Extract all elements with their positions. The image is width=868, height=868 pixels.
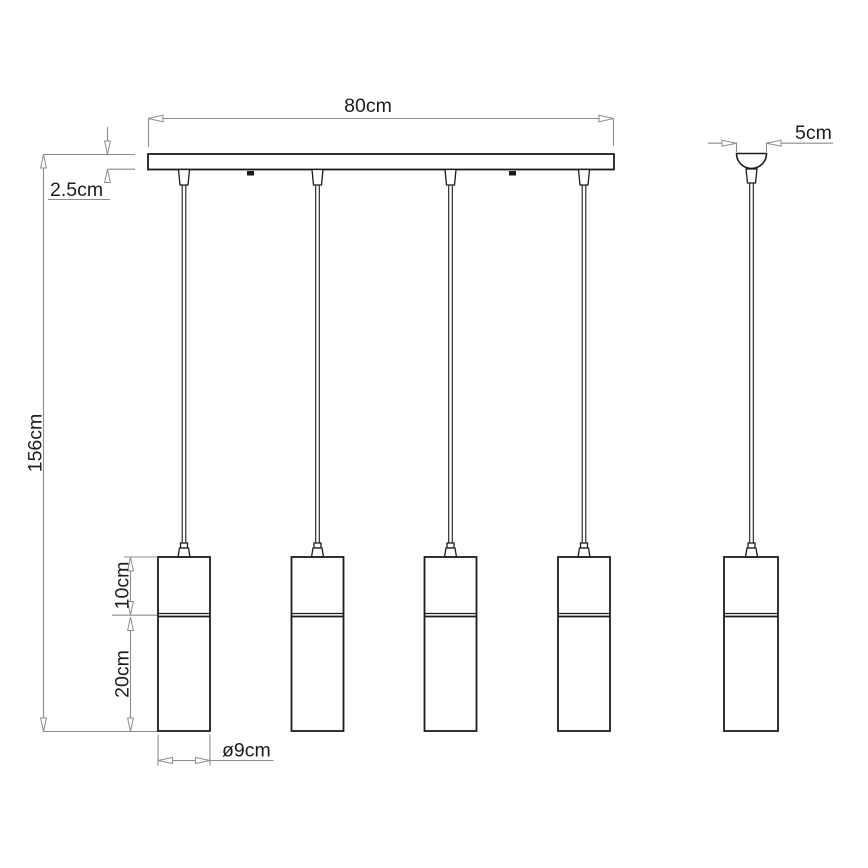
shade-diameter-label: ø9cm — [222, 740, 271, 762]
mounting-screw-dot — [509, 171, 516, 176]
cord-grip — [312, 170, 323, 186]
shade-connector — [746, 548, 758, 557]
shade-connector-stem — [314, 543, 321, 548]
front-view — [148, 154, 614, 731]
dim-bar-width: 80cm — [148, 95, 614, 147]
ceiling-bar — [148, 154, 614, 170]
suspension-cable — [750, 183, 754, 544]
pendant-3 — [425, 170, 477, 732]
cord-grip — [445, 170, 456, 186]
suspension-cable — [582, 185, 586, 544]
shade-cylinder — [724, 557, 778, 731]
canopy-dome — [737, 154, 767, 169]
suspension-cable — [316, 185, 320, 544]
shade-connector-stem — [447, 543, 454, 548]
bar-thickness-label: 2.5cm — [50, 179, 103, 201]
shade-lower-label: 20cm — [112, 650, 134, 698]
side-view — [724, 154, 778, 732]
shade-cylinder — [292, 557, 344, 731]
pendant-1 — [158, 170, 210, 732]
bar-width-label: 80cm — [344, 95, 392, 117]
canopy-width-label: 5cm — [795, 122, 832, 144]
shade-cylinder — [558, 557, 610, 731]
cord-grip — [179, 170, 190, 186]
shade-connector-stem — [181, 543, 188, 548]
dim-bar-thickness: 2.5cm — [43, 127, 135, 201]
mounting-screw-dot — [247, 171, 254, 176]
shade-connector — [312, 548, 324, 557]
suspension-cable — [182, 185, 186, 544]
dim-shade-upper: 10cm — [112, 557, 158, 615]
overall-drop-label: 156cm — [25, 414, 47, 473]
dim-shade-diameter: ø9cm — [158, 735, 274, 766]
dim-shade-lower: 20cm — [112, 617, 134, 732]
suspension-cable — [449, 185, 453, 544]
shade-cylinder — [425, 557, 477, 731]
dim-canopy-width: 5cm — [708, 122, 833, 152]
pendant-2 — [292, 170, 344, 732]
cord-grip — [579, 170, 590, 186]
pendant-4 — [558, 170, 610, 732]
dim-overall-drop: 156cm — [25, 155, 158, 732]
shade-connector-stem — [581, 543, 588, 548]
canopy-nipple — [746, 169, 757, 183]
shade-connector-stem — [748, 543, 755, 548]
pendant-light-dimension-drawing: 80cm 2.5cm 156cm 10cm — [0, 0, 868, 868]
shade-connector — [445, 548, 457, 557]
shade-connector — [178, 548, 190, 557]
shade-cylinder — [158, 557, 210, 731]
shade-connector — [578, 548, 590, 557]
shade-upper-label: 10cm — [112, 562, 134, 610]
